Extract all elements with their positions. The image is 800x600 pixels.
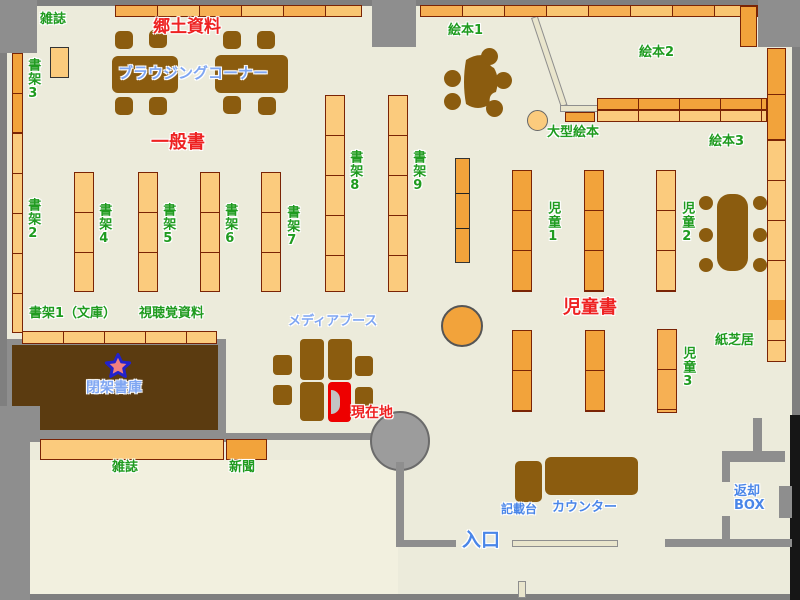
lower-left-room-floor	[28, 460, 398, 594]
media-booth-unit	[328, 339, 352, 380]
wall-bottom	[0, 594, 800, 600]
label-current-location: 現在地	[351, 406, 393, 421]
bookshelf-column-4	[74, 172, 94, 292]
ogata-ehon-stand	[527, 110, 548, 131]
shelf-magazine-top	[50, 47, 69, 78]
entrance-door	[512, 540, 618, 547]
children-table	[717, 194, 748, 271]
label-shelf-6: 書架6	[222, 203, 236, 247]
shelf-under-partition	[565, 112, 595, 122]
bookshelf-column-8	[325, 95, 345, 292]
shelf-newspaper	[226, 439, 267, 460]
label-counter: カウンター	[552, 501, 617, 515]
label-ehon-1: 絵本1	[448, 24, 483, 38]
returnbox-wall-left-lower	[722, 516, 730, 547]
media-booth-seat	[355, 356, 373, 376]
children-shelf-lower-2	[585, 330, 605, 412]
door-post	[518, 581, 526, 598]
current-location-seat-icon	[331, 390, 340, 414]
children-stool	[699, 228, 713, 242]
shelf-left-wall-upper	[12, 53, 23, 133]
children-stool	[753, 228, 767, 242]
shelf-right-wall-lower	[767, 140, 786, 362]
label-local-materials: 郷土資料	[153, 18, 221, 37]
browsing-chair	[223, 31, 241, 49]
label-shelf-4: 書架4	[96, 203, 110, 247]
shelf-top-left-strip	[115, 5, 362, 17]
label-shelf-7: 書架7	[284, 205, 298, 249]
media-booth-seat	[355, 387, 373, 407]
label-kisaidai: 記載台	[501, 503, 537, 516]
browsing-chair	[149, 97, 167, 115]
diagonal-partition-foot	[560, 105, 598, 112]
bookshelf-column-9	[388, 95, 408, 292]
shelf-left-wall-lower	[12, 133, 23, 333]
library-floor-map: 閉架書庫	[0, 0, 800, 600]
label-shelf-5: 書架5	[160, 203, 174, 247]
wall-entrance-left	[398, 540, 456, 547]
ehon1-stool	[444, 70, 461, 87]
label-magazine-bottom: 雑誌	[112, 461, 138, 475]
label-kamishibai: 紙芝居	[715, 334, 754, 348]
label-children-1: 児童1	[545, 201, 559, 245]
kisaidai-desk	[515, 461, 542, 502]
children-stool	[753, 258, 767, 272]
wall-below-pillar	[396, 462, 404, 547]
closed-stacks-wall-step	[0, 406, 40, 442]
closed-stacks-label: 閉架書庫	[86, 381, 142, 396]
label-shelf-3: 書架3	[25, 58, 39, 102]
label-large-picture-books: 大型絵本	[547, 126, 599, 140]
children-shelf-lower-1	[512, 330, 532, 412]
shelf-right-wall-upper	[767, 48, 786, 140]
round-table	[441, 305, 483, 347]
browsing-chair	[115, 97, 133, 115]
browsing-chair	[258, 97, 276, 115]
returnbox-wall-left-upper	[722, 451, 730, 482]
label-shelf-1-bunko: 書架1（文庫）	[29, 307, 116, 321]
media-booth-unit	[300, 382, 324, 421]
corner-block-top-left	[0, 0, 37, 53]
shelf-ehon2-row2	[597, 110, 767, 122]
label-general-books: 一般書	[151, 133, 205, 153]
counter-desk	[545, 457, 638, 495]
label-children-3: 児童3	[680, 346, 694, 390]
children-shelf-column-1	[512, 170, 532, 292]
children-stool	[753, 196, 767, 210]
label-ehon-2: 絵本2	[639, 46, 674, 60]
media-booth-seat	[273, 385, 292, 405]
shelf-right-wall-dark-segment	[768, 300, 785, 320]
returnbox-wall-right	[779, 486, 792, 518]
label-return-box: 返却 BOX	[734, 485, 765, 514]
returnbox-wall-top	[722, 451, 785, 462]
ehon1-stool	[481, 48, 498, 65]
children-shelf-column-2	[584, 170, 604, 292]
label-audiovisual: 視聴覚資料	[139, 307, 204, 321]
children-shelf-column-3	[656, 170, 676, 292]
shelf-ehon2-row1	[597, 98, 767, 110]
label-newspaper: 新聞	[229, 461, 255, 475]
children-stool	[699, 196, 713, 210]
shelf-magazine-bottom	[40, 439, 224, 460]
label-magazine-top: 雑誌	[40, 13, 66, 27]
browsing-chair	[223, 96, 241, 114]
label-shelf-9: 書架9	[410, 150, 424, 194]
shelf-bunko-strip	[22, 331, 217, 344]
children-shelf-lower-3	[657, 329, 677, 413]
media-booth-seat	[273, 355, 292, 375]
ehon1-stool	[495, 72, 512, 89]
bookshelf-column-7	[261, 172, 281, 292]
label-ehon-3: 絵本3	[709, 135, 744, 149]
bookshelf-low-strip	[455, 158, 470, 263]
ehon1-stool	[486, 100, 503, 117]
children-stool	[699, 258, 713, 272]
bookshelf-column-5	[138, 172, 158, 292]
shelf-top-right-strip	[420, 5, 758, 17]
pillar-top	[372, 0, 416, 47]
label-entrance: 入口	[462, 530, 500, 551]
returnbox-wall-stub-top	[753, 418, 762, 454]
current-location-marker	[328, 382, 351, 422]
label-shelf-2: 書架2	[25, 198, 39, 242]
label-return-box-line2: BOX	[734, 499, 765, 513]
bookshelf-column-6	[200, 172, 220, 292]
label-browsing-corner: ブラウジングコーナー	[118, 65, 268, 82]
star-icon	[103, 352, 133, 381]
label-media-booth: メディアブース	[288, 315, 377, 329]
corner-block-top-right	[758, 0, 800, 47]
shelf-top-corner-vertical	[740, 6, 757, 47]
browsing-chair	[115, 31, 133, 49]
diagonal-partition	[531, 16, 567, 107]
label-shelf-8: 書架8	[347, 150, 361, 194]
media-booth-unit	[300, 339, 324, 380]
label-children-2: 児童2	[679, 201, 693, 245]
ehon1-stool	[444, 93, 461, 110]
label-children-books: 児童書	[563, 298, 617, 318]
browsing-chair	[257, 31, 275, 49]
